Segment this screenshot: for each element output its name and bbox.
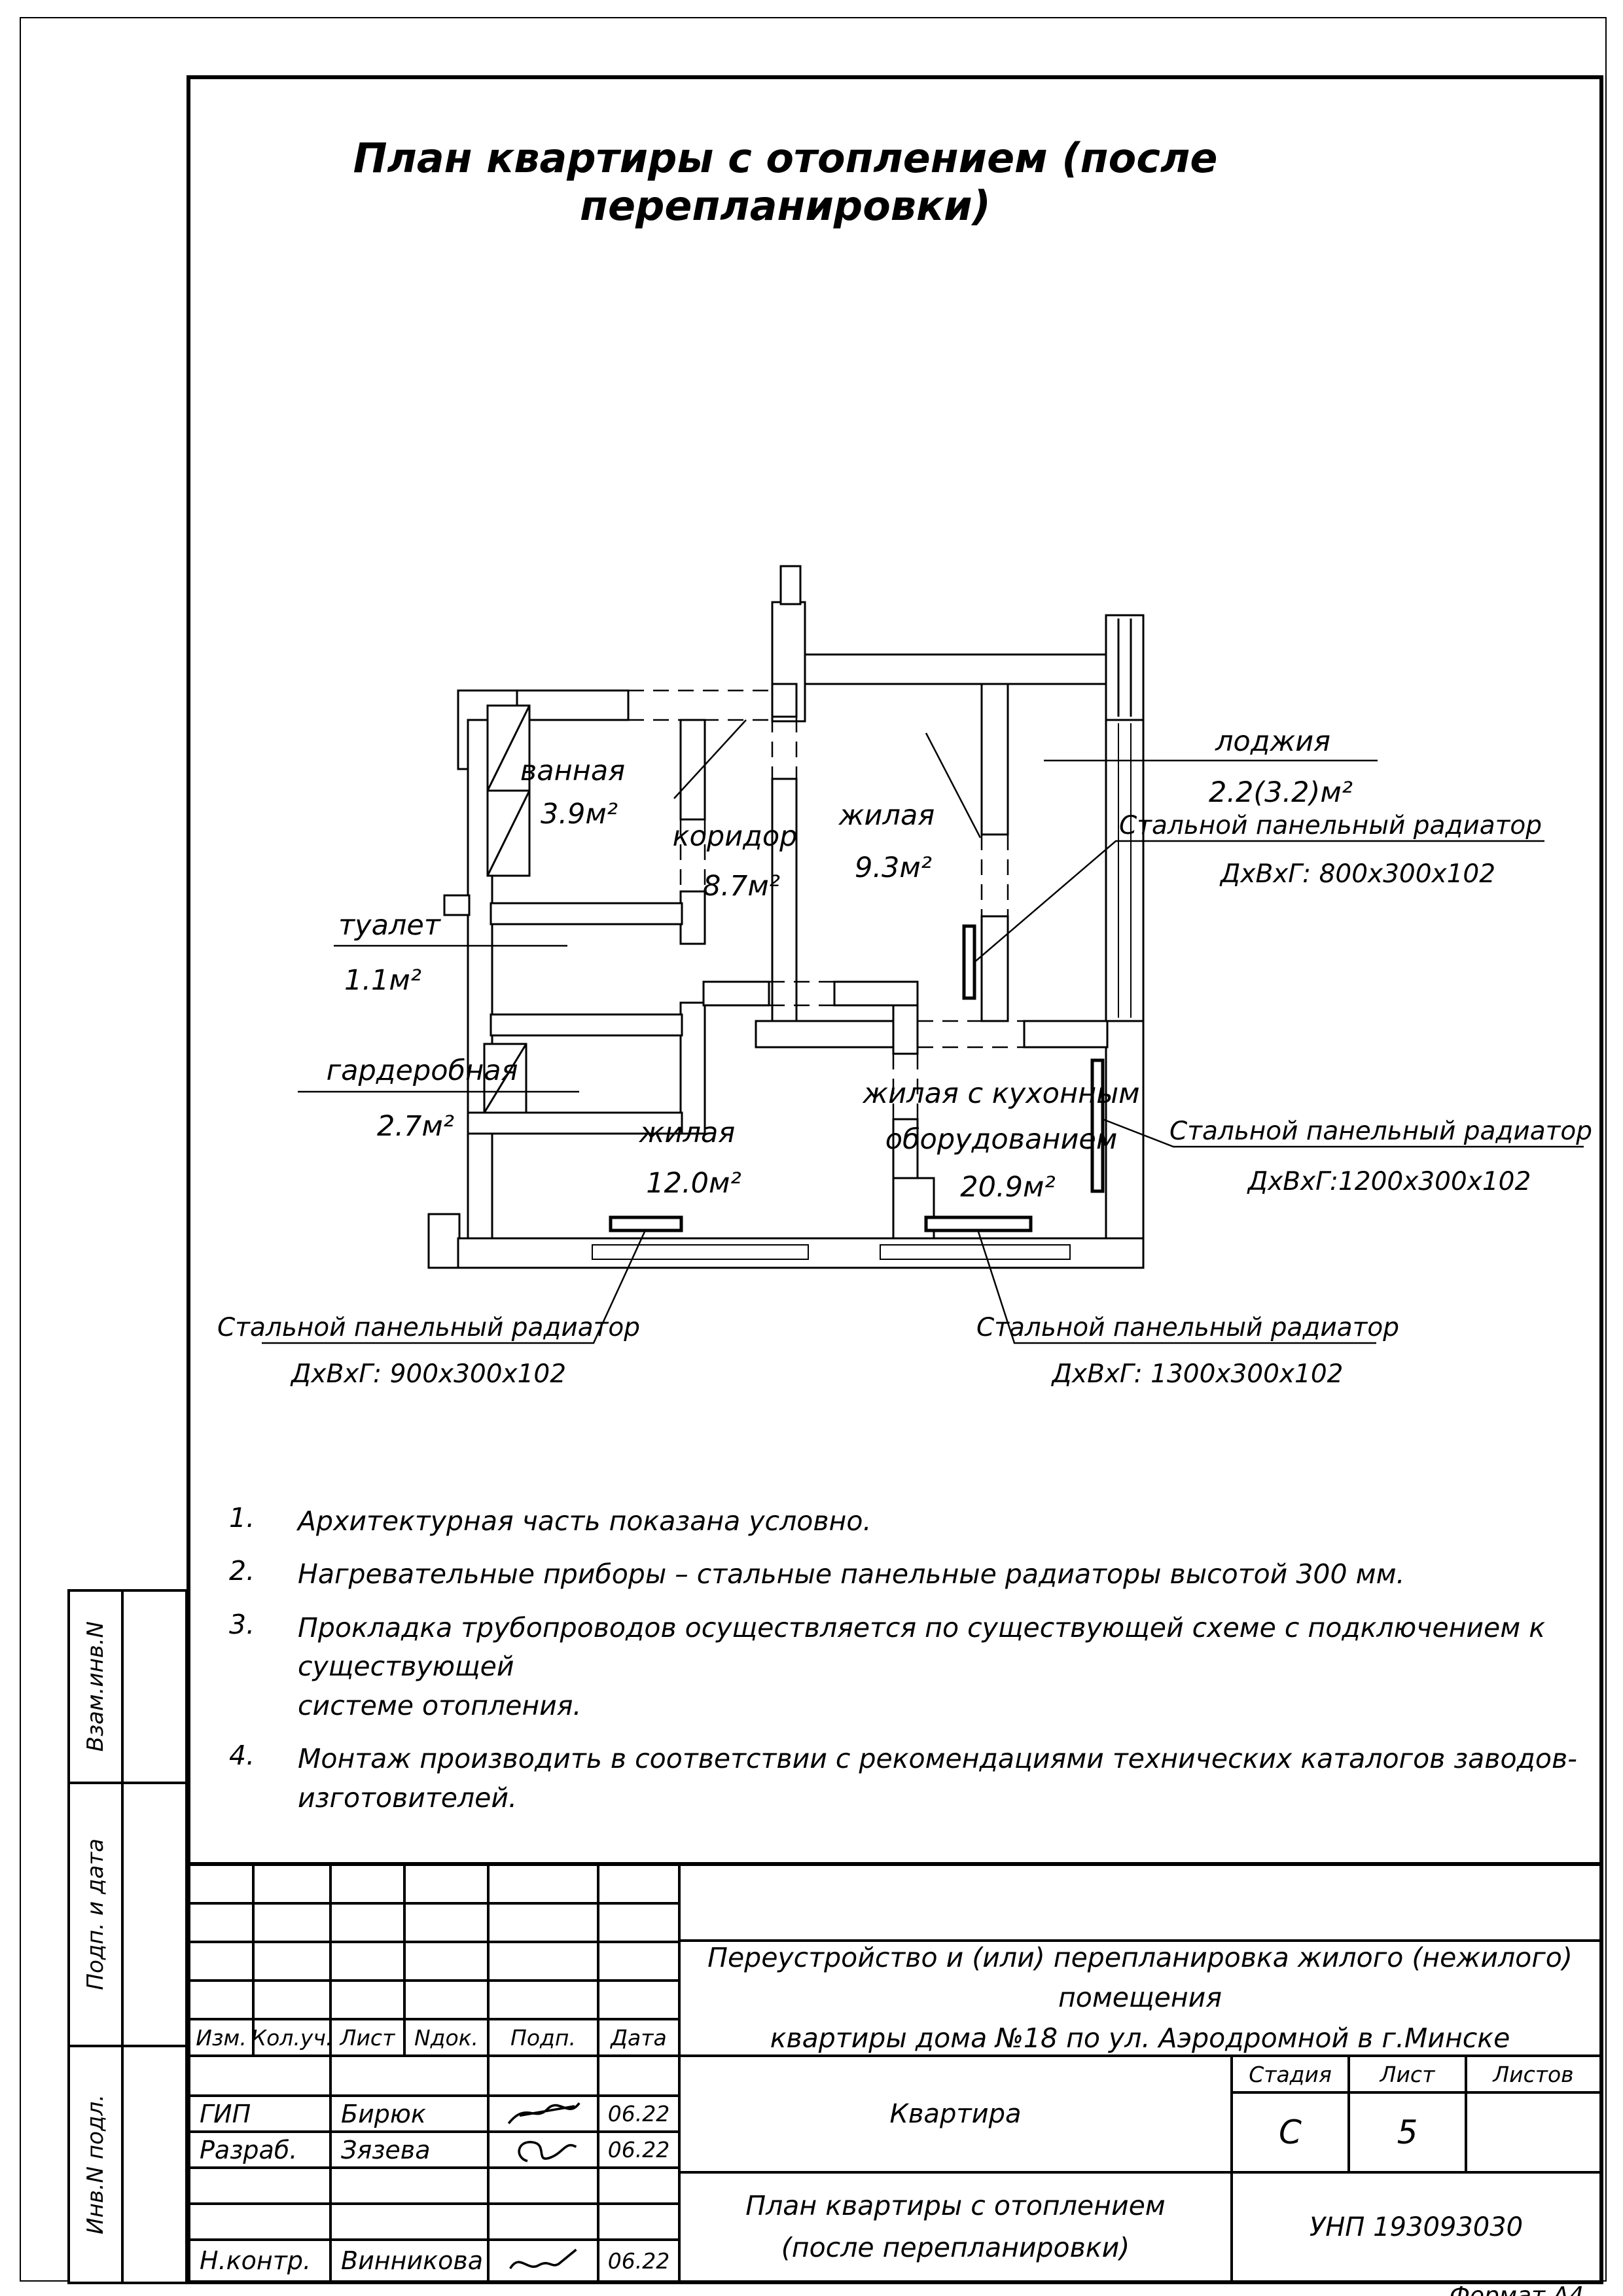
room-area-lodzhiya: 2.2(3.2)м²	[1209, 776, 1353, 809]
tb-col-data: Дата	[599, 2020, 678, 2054]
room-label-zhilaya209-1: жилая с кухонным	[862, 1077, 1139, 1110]
callout-rad1300-dims: ДхВхГ: 1300х300х102	[1051, 1359, 1344, 1389]
note-text: Нагревательные приборы – стальные панель…	[298, 1555, 1584, 1594]
room-area-vannaya: 3.9м²	[541, 798, 618, 831]
tb-stage-value: С	[1233, 2094, 1347, 2171]
tb-stage-label: Стадия	[1233, 2057, 1347, 2091]
note-item-3: 3. Прокладка трубопроводов осуществляетс…	[229, 1609, 1584, 1725]
note-number: 2.	[229, 1555, 298, 1594]
tb-name-gip: Бирюк	[332, 2097, 487, 2130]
sidebar-label-podp: Подп. и дата	[82, 1839, 109, 1990]
radiator-900	[611, 1217, 681, 1230]
tb-sheet-label: Лист	[1350, 2057, 1465, 2091]
room-label-zhilaya209-2: оборудованием	[885, 1123, 1118, 1156]
tb-col-kol: Кол.уч.	[255, 2020, 329, 2054]
callout-rad900-label: Стальной панельный радиатор	[217, 1313, 640, 1342]
room-label-tualet: туалет	[338, 909, 442, 942]
tb-sheets-label: Листов	[1467, 2057, 1599, 2091]
walls	[429, 566, 1143, 1268]
note-number: 1.	[229, 1502, 298, 1541]
callout-rad800-label: Стальной панельный радиатор	[1119, 811, 1542, 840]
tb-date-gip: 06.22	[599, 2097, 678, 2130]
tb-date-razrab: 06.22	[599, 2133, 678, 2166]
signature-icon	[490, 2097, 597, 2130]
sidebar-label-inv: Инв.N подл.	[82, 2094, 109, 2234]
sidebar-empty-cell	[124, 1784, 185, 2045]
note-text: Прокладка трубопроводов осуществляется п…	[298, 1609, 1584, 1687]
sidebar-empty-cell	[124, 2047, 185, 2282]
title-block: Изм. Кол.уч. Лист Nдок. Подп. Дата ГИП Б…	[187, 1862, 1603, 2284]
tb-project: Переустройство и (или) перепланировка жи…	[681, 1942, 1599, 2054]
callout-rad900-dims: ДхВхГ: 900х300х102	[290, 1359, 566, 1389]
radiator-800	[964, 926, 974, 998]
signature-icon	[490, 2133, 597, 2166]
tb-project-line1: Переустройство и (или) перепланировка жи…	[681, 1942, 1599, 2018]
note-text: Архитектурная часть показана условно.	[298, 1502, 1584, 1541]
drawing-sheet: План квартиры с отоплением (после перепл…	[0, 0, 1623, 2296]
tb-doc-title-line1: План квартиры с отоплением	[745, 2185, 1166, 2227]
tb-date-nkontr: 06.22	[599, 2241, 678, 2280]
room-area-koridor: 8.7м²	[703, 870, 780, 903]
tb-col-podp: Подп.	[490, 2020, 597, 2054]
title-block-right: Переустройство и (или) перепланировка жи…	[681, 1866, 1599, 2280]
tb-col-izm: Изм.	[190, 2020, 252, 2054]
room-area-zhilaya12: 12.0м²	[646, 1167, 741, 1200]
tb-unp: УНП 193093030	[1233, 2174, 1599, 2280]
page-title: План квартиры с отоплением (после перепл…	[262, 134, 1309, 230]
tb-sheets-value	[1467, 2094, 1599, 2171]
tb-object: Квартира	[681, 2057, 1230, 2171]
room-label-zhilaya93: жилая	[838, 799, 935, 832]
tb-role-nkontr: Н.контр.	[190, 2241, 329, 2280]
note-item-1: 1. Архитектурная часть показана условно.	[229, 1502, 1584, 1541]
tb-sheet-value: 5	[1350, 2094, 1465, 2171]
callout-rad800-dims: ДхВхГ: 800х300х102	[1219, 859, 1495, 889]
tb-name-razrab: Зязева	[332, 2133, 487, 2166]
signature-icon	[490, 2241, 597, 2280]
tb-top-empty	[681, 1866, 1599, 1939]
tb-stage-col: Стадия С	[1233, 2057, 1347, 2171]
notes-list: 1. Архитектурная часть показана условно.…	[229, 1502, 1584, 1832]
tb-role-razrab: Разраб.	[190, 2133, 329, 2166]
room-area-tualet: 1.1м²	[344, 964, 421, 997]
note-number: 3.	[229, 1609, 298, 1725]
tb-role-gip: ГИП	[190, 2097, 329, 2130]
room-area-garderob: 2.7м²	[377, 1110, 454, 1143]
sidebar-stamp: Взам.инв.N Подп. и дата Инв.N подл.	[67, 1589, 188, 2284]
callout-rad1200-label: Стальной панельный радиатор	[1169, 1117, 1592, 1146]
title-block-left: Изм. Кол.уч. Лист Nдок. Подп. Дата ГИП Б…	[190, 1866, 678, 2280]
tb-doc-title: План квартиры с отоплением (после перепл…	[681, 2174, 1230, 2280]
sidebar-empty-cell	[124, 1592, 185, 1782]
room-label-koridor: коридор	[673, 820, 798, 853]
tb-doc-title-line2: (после перепланировки)	[781, 2227, 1130, 2269]
tb-col-ndok: Nдок.	[406, 2020, 487, 2054]
note-item-4: 4. Монтаж производить в соответствии с р…	[229, 1740, 1584, 1818]
room-label-garderob: гардеробная	[327, 1054, 518, 1087]
callout-rad1200-dims: ДхВхГ:1200х300х102	[1247, 1167, 1531, 1196]
note-text-cont: системе отопления.	[298, 1687, 1584, 1725]
note-item-2: 2. Нагревательные приборы – стальные пан…	[229, 1555, 1584, 1594]
note-text: Монтаж производить в соответствии с реко…	[298, 1740, 1584, 1818]
floor-plan: ванная 3.9м² коридор 8.7м² жилая 9.3м² л…	[187, 458, 1603, 1440]
format-label: Формат А4	[1450, 2282, 1584, 2296]
radiator-1300	[926, 1217, 1031, 1230]
tb-sheet-col: Лист 5	[1350, 2057, 1465, 2171]
room-label-vannaya: ванная	[520, 755, 625, 787]
callout-rad1300-label: Стальной панельный радиатор	[976, 1313, 1399, 1342]
tb-col-list: Лист	[332, 2020, 403, 2054]
room-label-zhilaya12: жилая	[639, 1117, 735, 1149]
room-area-zhilaya209: 20.9м²	[960, 1171, 1055, 1204]
note-number: 4.	[229, 1740, 298, 1818]
sidebar-label-vzam: Взам.инв.N	[82, 1621, 109, 1751]
tb-project-line2: квартиры дома №18 по ул. Аэродромной в г…	[770, 2018, 1510, 2054]
tb-name-nkontr: Винникова	[332, 2241, 487, 2280]
tb-sheets-col: Листов	[1467, 2057, 1599, 2171]
room-label-lodzhiya: лоджия	[1215, 725, 1330, 758]
room-area-zhilaya93: 9.3м²	[855, 852, 932, 884]
